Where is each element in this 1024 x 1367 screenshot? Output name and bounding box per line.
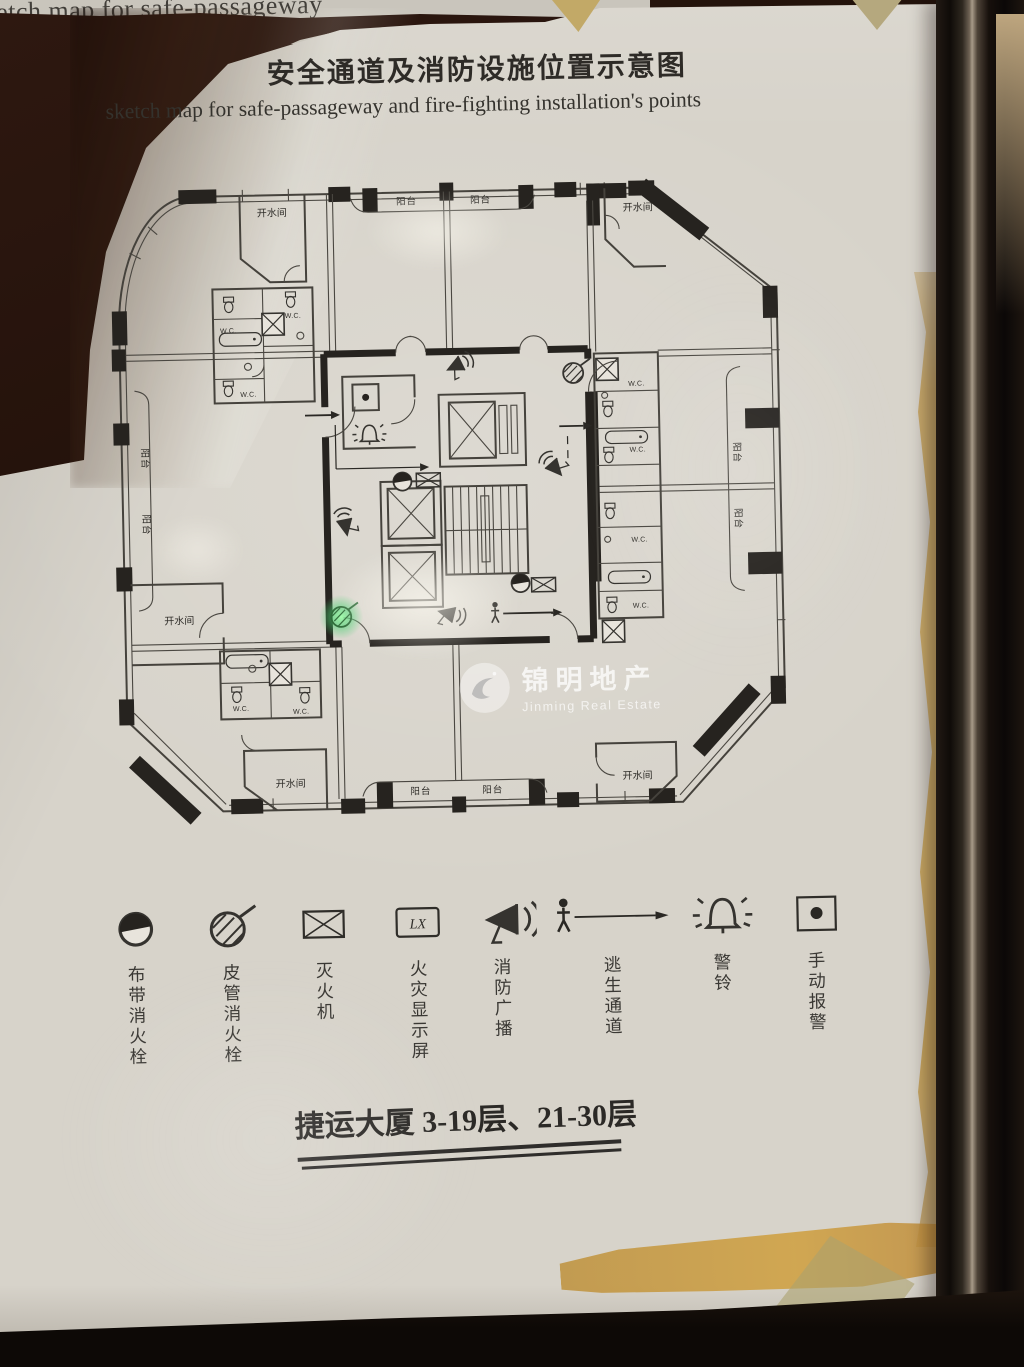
- legend-label: 布带消火栓: [126, 965, 146, 1068]
- watermark: 锦明地产 Jinming Real Estate: [457, 656, 662, 715]
- legend-label: 手动报警: [806, 951, 825, 1033]
- legend-label: 逃生通道: [602, 955, 621, 1037]
- wc-label: W.C.: [285, 313, 302, 320]
- legend-item-alarm-bell: 警铃: [692, 886, 756, 994]
- wc-label: W.C.: [293, 709, 310, 716]
- wc-label: W.C.: [220, 328, 237, 335]
- legend-item-hose-hydrant: 皮管消火栓: [201, 897, 263, 1067]
- staircase: [445, 485, 529, 575]
- legend-item-escape-route: 逃生通道: [549, 888, 682, 1039]
- wc-label: W.C.: [630, 446, 647, 453]
- hot-water-room-label: 开水间: [276, 777, 306, 791]
- hot-water-room-label: 开水间: [164, 614, 194, 628]
- frame-edge-highlight: [996, 14, 1024, 314]
- watermark-wave-logo-icon: [457, 660, 512, 715]
- legend-label: 火灾显示屏: [408, 959, 428, 1062]
- band-hydrant-icon: [510, 573, 531, 594]
- balcony-label: 阳台: [140, 514, 152, 535]
- alarm-bell-icon: [352, 424, 386, 445]
- legend-label: 灭火机: [314, 961, 333, 1023]
- wc-label: W.C.: [631, 536, 648, 543]
- legend-item-band-hydrant: 布带消火栓: [106, 899, 168, 1069]
- extinguisher-icon: [531, 577, 555, 591]
- balcony-label: 阳台: [139, 448, 151, 469]
- alarm-bell-icon: [692, 886, 755, 945]
- hot-water-room-label: 开水间: [623, 200, 653, 214]
- escape-person-icon: [491, 602, 499, 623]
- hot-water-room-label: 开水间: [622, 768, 652, 782]
- balcony-label: 阳台: [482, 784, 503, 796]
- band-hydrant-icon: [106, 899, 165, 958]
- hose-hydrant-icon: [563, 359, 590, 384]
- balcony-label: 阳台: [732, 508, 744, 529]
- wc-label: W.C.: [628, 380, 645, 387]
- legend-item-manual-alarm: 手动报警: [786, 884, 849, 1033]
- wc-block-lower: W.C. W.C.: [220, 649, 321, 719]
- legend-item-fire-display: LX 火灾显示屏: [388, 893, 450, 1063]
- watermark-texts: 锦明地产 Jinming Real Estate: [521, 656, 662, 714]
- balcony-label: 阳台: [410, 785, 431, 797]
- manual-alarm-icon: [786, 884, 847, 943]
- floor-plan: 阳台 阳台 阳台 阳台 阳台 阳台 阳台 阳台 开水间 开水间 开水间: [91, 139, 806, 878]
- legend-item-fire-broadcast: 消防广播: [472, 891, 539, 1040]
- hose-hydrant-icon: [201, 897, 260, 956]
- framed-evacuation-map-photo: sketch map for safe-passageway 安全通道及消防设施…: [0, 0, 1024, 1367]
- legend-item-extinguisher: 灭火机: [294, 895, 355, 1024]
- wall-columns: [108, 176, 788, 826]
- wc-label: W.C.: [240, 392, 257, 399]
- fire-broadcast-icon: [472, 891, 537, 950]
- wc-column-right: W.C. W.C. W.C. W.C.: [594, 352, 664, 642]
- wc-block-upper: W.C. W.C. W.C.: [212, 287, 314, 403]
- wc-label: W.C.: [633, 602, 650, 609]
- elevators: [379, 393, 529, 608]
- map-title-cn: 安全通道及消防设施位置示意图: [56, 39, 897, 97]
- fire-broadcast-icon: [333, 506, 359, 539]
- wc-label: W.C.: [233, 706, 250, 713]
- legend-label: 皮管消火栓: [221, 963, 241, 1066]
- legend-label: 警铃: [712, 953, 730, 994]
- balcony-label: 阳台: [396, 195, 417, 207]
- extinguisher-icon: [294, 895, 353, 954]
- fire-display-text: LX: [409, 917, 427, 932]
- watermark-cn: 锦明地产: [521, 656, 661, 698]
- balcony-label: 阳台: [731, 442, 743, 463]
- balcony-label: 阳台: [470, 194, 491, 206]
- fire-display-icon: LX: [388, 893, 447, 952]
- building-core: [303, 332, 623, 645]
- watermark-en: Jinming Real Estate: [522, 697, 662, 714]
- escape-route-icon: [549, 888, 680, 949]
- alarm-room: [342, 375, 415, 448]
- hot-water-room-label: 开水间: [257, 206, 287, 220]
- building-caption: 捷运大厦 3-19层、21-30层: [291, 1089, 640, 1146]
- fire-broadcast-icon: [536, 446, 571, 482]
- legend-label: 消防广播: [492, 957, 511, 1039]
- paper-content: 安全通道及消防设施位置示意图 sketch map for safe-passa…: [0, 0, 1024, 1367]
